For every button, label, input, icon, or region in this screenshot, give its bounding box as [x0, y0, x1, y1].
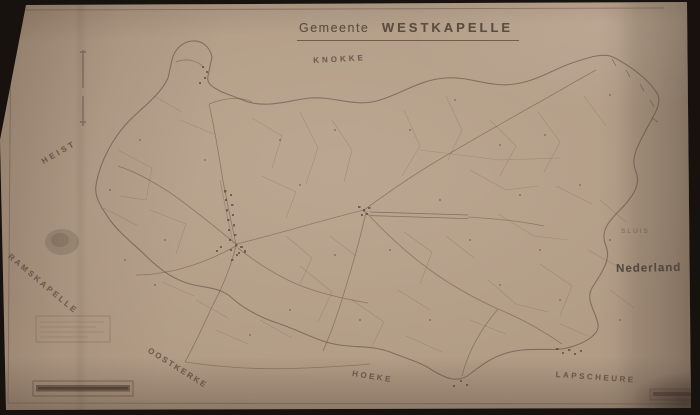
main-roads [118, 60, 596, 376]
country-label-nederland: Nederland [616, 262, 681, 275]
caption-box [33, 381, 133, 396]
place-label-sluis: SLUIS [621, 228, 650, 235]
paper-stain [45, 229, 79, 255]
map-neatline [8, 8, 688, 404]
map-title: Gemeente WESTKAPELLE [297, 19, 519, 41]
legend-box [36, 316, 110, 342]
frontier-ticks [612, 59, 658, 122]
map-title-prefix: Gemeente [299, 21, 369, 35]
building-marks [199, 66, 582, 387]
railway-double-line [370, 212, 544, 226]
photo-of-map: { "title": { "prefix": "Gemeente", "name… [0, 0, 700, 415]
municipal-boundary [96, 41, 659, 379]
parcel-lines [104, 96, 634, 352]
scale-mark [80, 50, 86, 126]
corner-note-box [650, 389, 696, 400]
map-paper-sheet: Gemeente WESTKAPELLE KNOKKE HEIST RAMSKA… [0, 0, 700, 415]
map-title-name: WESTKAPELLE [382, 20, 513, 35]
